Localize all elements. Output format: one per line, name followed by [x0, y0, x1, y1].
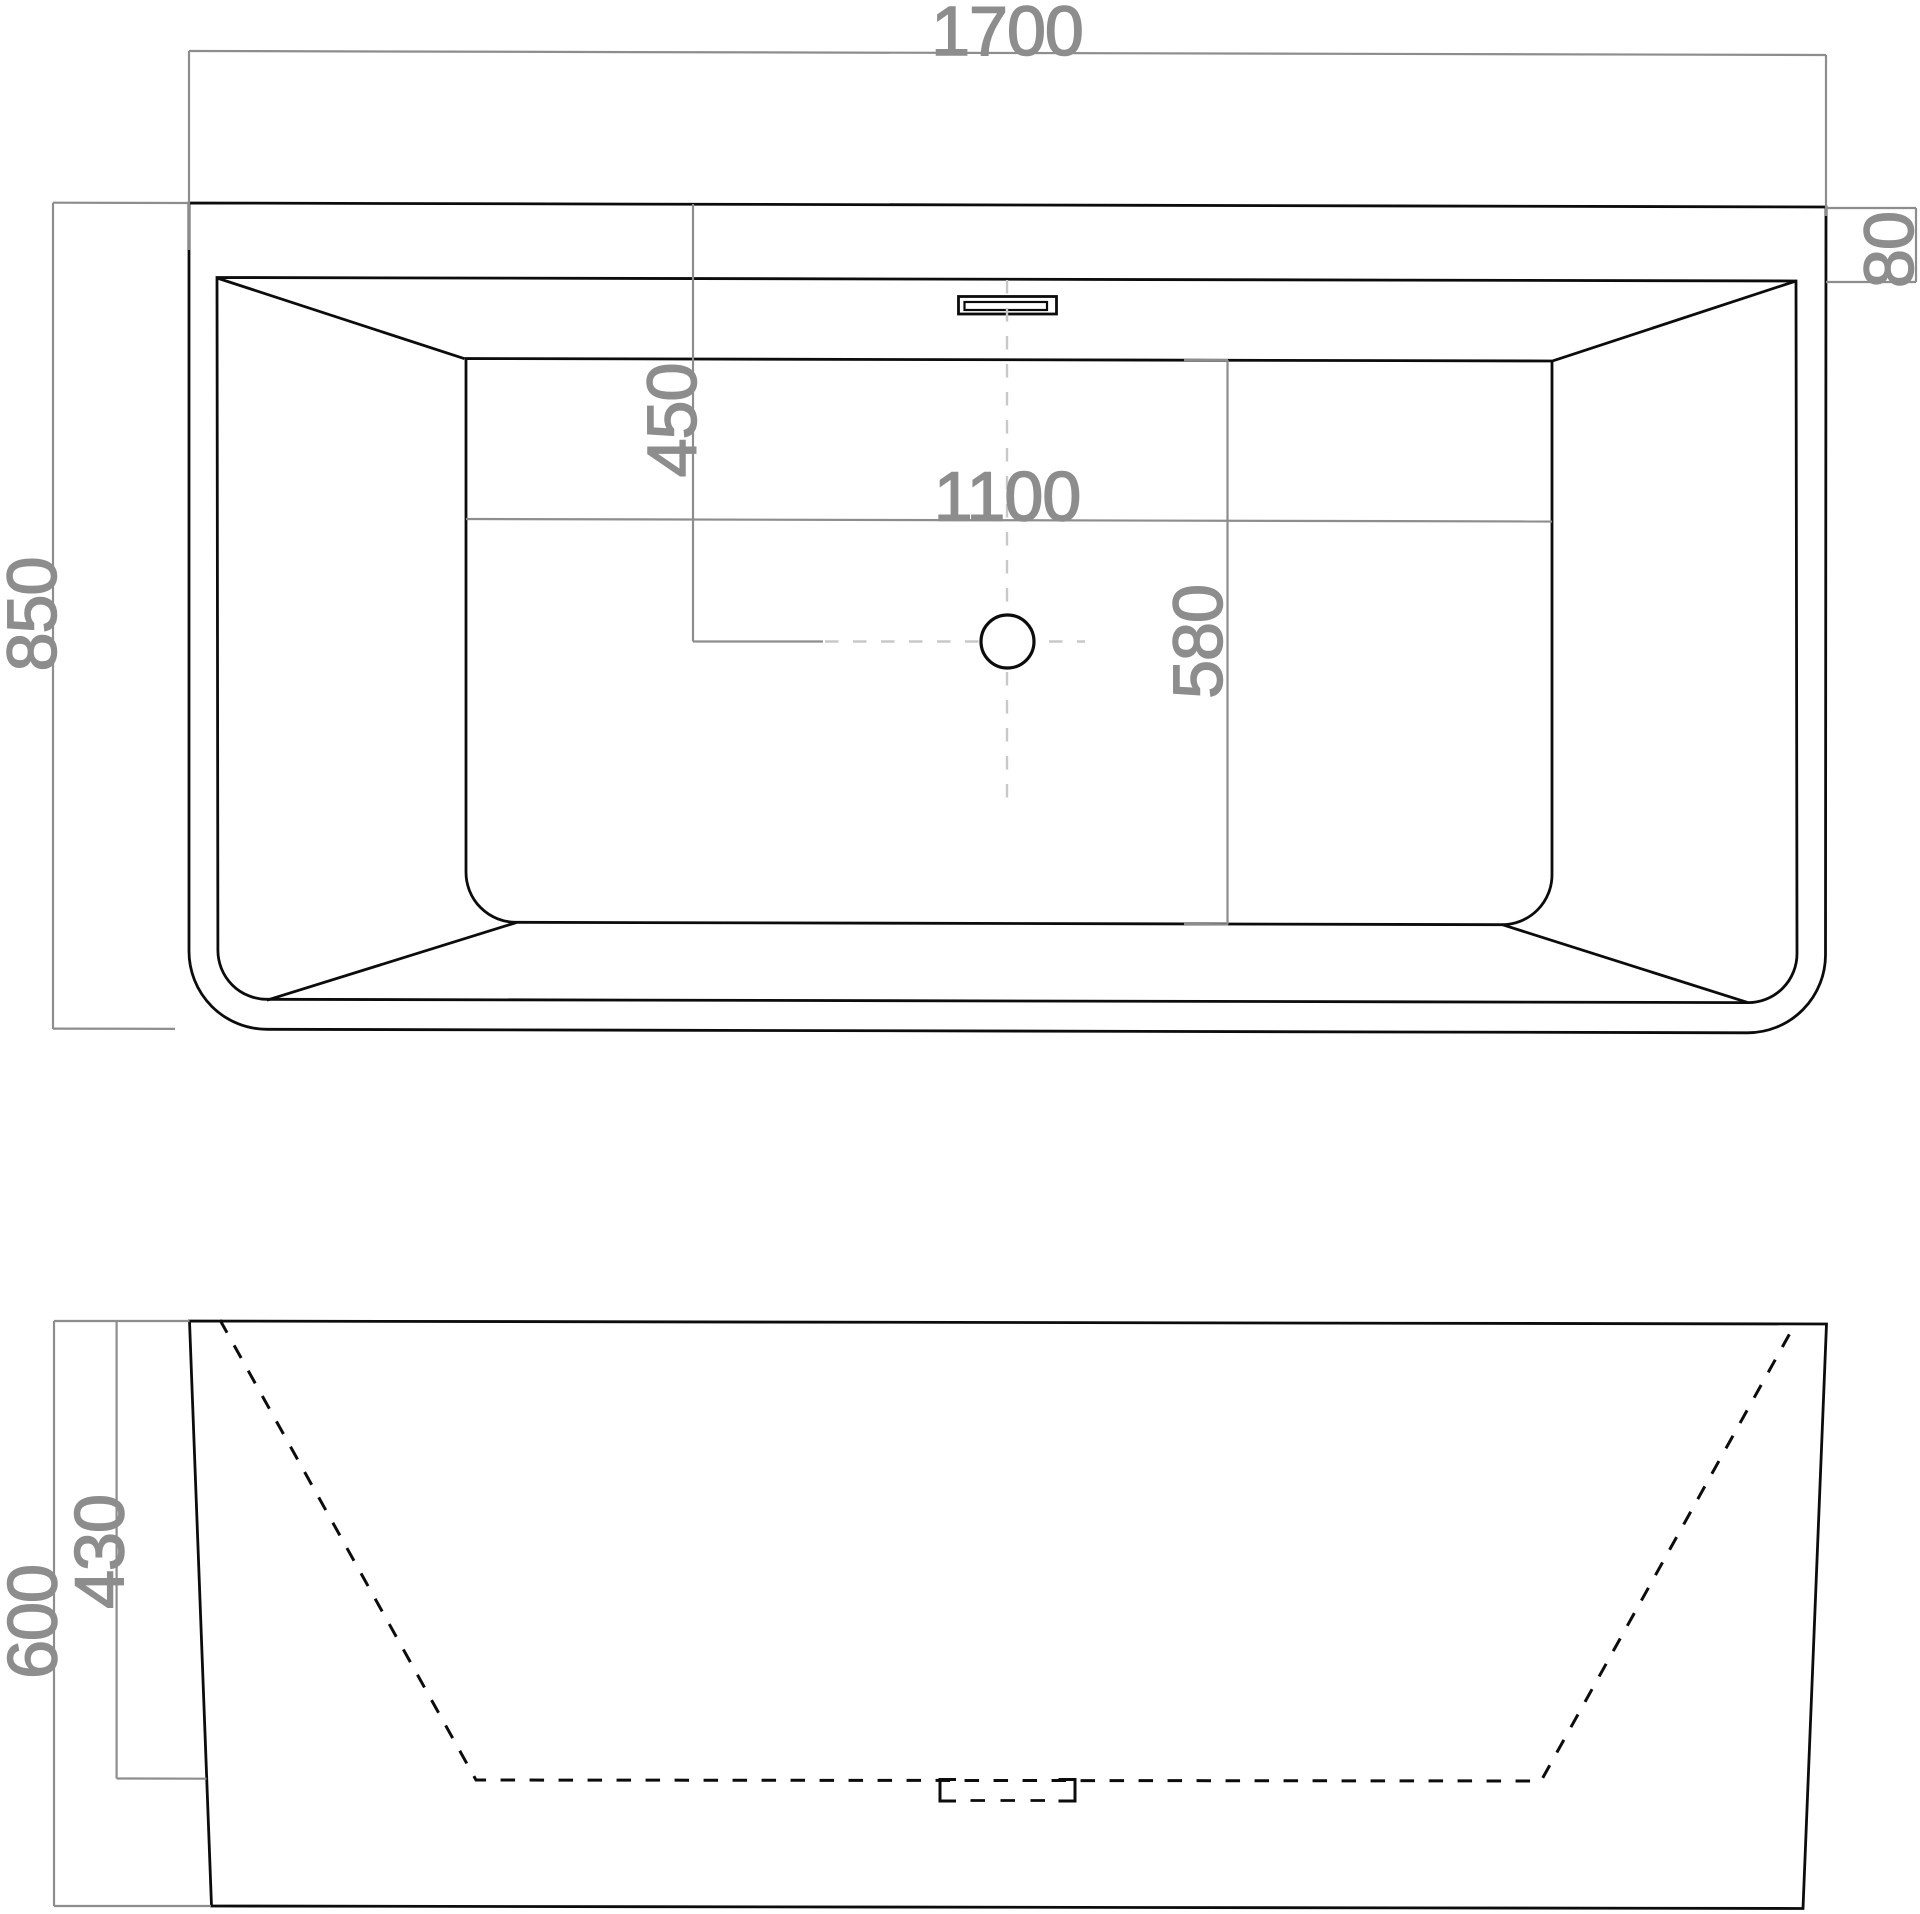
svg-text:80: 80 [1850, 212, 1920, 288]
svg-text:1700: 1700 [931, 0, 1083, 70]
svg-text:580: 580 [1159, 585, 1237, 699]
svg-text:430: 430 [61, 1495, 139, 1609]
svg-text:450: 450 [633, 364, 711, 478]
svg-text:850: 850 [0, 558, 71, 672]
svg-text:1100: 1100 [934, 458, 1081, 536]
